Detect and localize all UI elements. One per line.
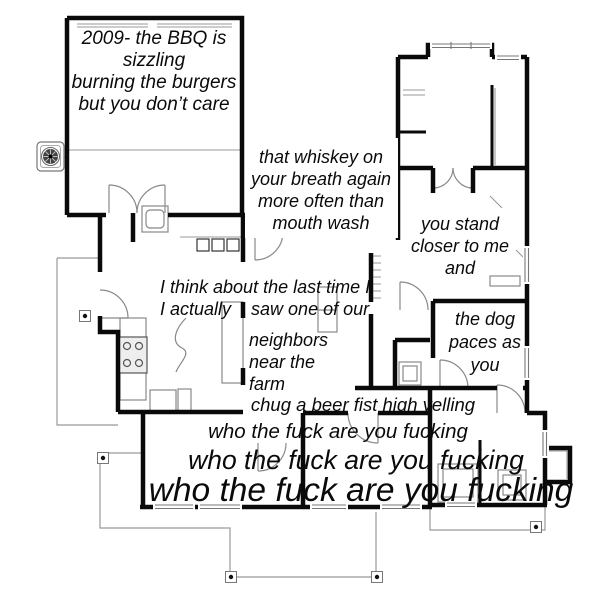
lyric-line: but you don’t care — [64, 94, 244, 116]
lyric-neighbors: neighbors near the farm — [249, 329, 328, 395]
floor-plan-meme: 2009- the BBQ is sizzling burning the bu… — [0, 0, 600, 600]
lyric-line: I think about the last time I — [160, 276, 370, 298]
stove-icon — [119, 337, 147, 373]
lyric-line: 2009- the BBQ is — [64, 28, 244, 50]
lyric-line: paces as — [433, 331, 537, 354]
lyric-garage: 2009- the BBQ is sizzling burning the bu… — [64, 28, 244, 116]
lyric-whiskey: that whiskey on your breath again more o… — [240, 146, 402, 234]
lyric-line: burning the burgers — [64, 72, 244, 94]
lyric-last-time: I think about the last time I I actually… — [160, 276, 370, 320]
lyric-who-medium: who the fuck are you fucking — [146, 446, 566, 475]
lyric-line: near the — [249, 351, 328, 373]
lyric-line: more often than — [240, 190, 402, 212]
lyric-line: sizzling — [64, 50, 244, 72]
lyric-line: closer to me — [396, 235, 524, 257]
lyric-line: I actually saw one of our — [160, 298, 370, 320]
lyric-you-stand: you stand closer to me and — [396, 213, 524, 279]
lyric-line: farm — [249, 373, 328, 395]
lyric-line: that whiskey on — [240, 146, 402, 168]
lyric-line: who the fuck are you fucking — [146, 446, 566, 475]
lyric-line: who the fuck are you fucking — [178, 420, 498, 443]
lyric-line: the dog — [433, 308, 537, 331]
lyric-line: chug a beer fist high yelling — [233, 394, 493, 415]
lyric-line: you — [433, 354, 537, 377]
lyric-line: neighbors — [249, 329, 328, 351]
chair-squiggle — [175, 318, 186, 372]
lyric-line: you stand — [396, 213, 524, 235]
lyric-who-large: who the fuck are you fucking — [101, 473, 600, 509]
lyric-line: mouth wash — [240, 212, 402, 234]
lyric-line: your breath again — [240, 168, 402, 190]
lyric-line: and — [396, 257, 524, 279]
lyric-line: who the fuck are you fucking — [101, 473, 600, 509]
lyric-chug: chug a beer fist high yelling — [233, 394, 493, 415]
lyric-who-small: who the fuck are you fucking — [178, 420, 498, 443]
lyric-dog: the dog paces as you — [433, 308, 537, 377]
ceiling-fan-icon — [37, 142, 64, 171]
